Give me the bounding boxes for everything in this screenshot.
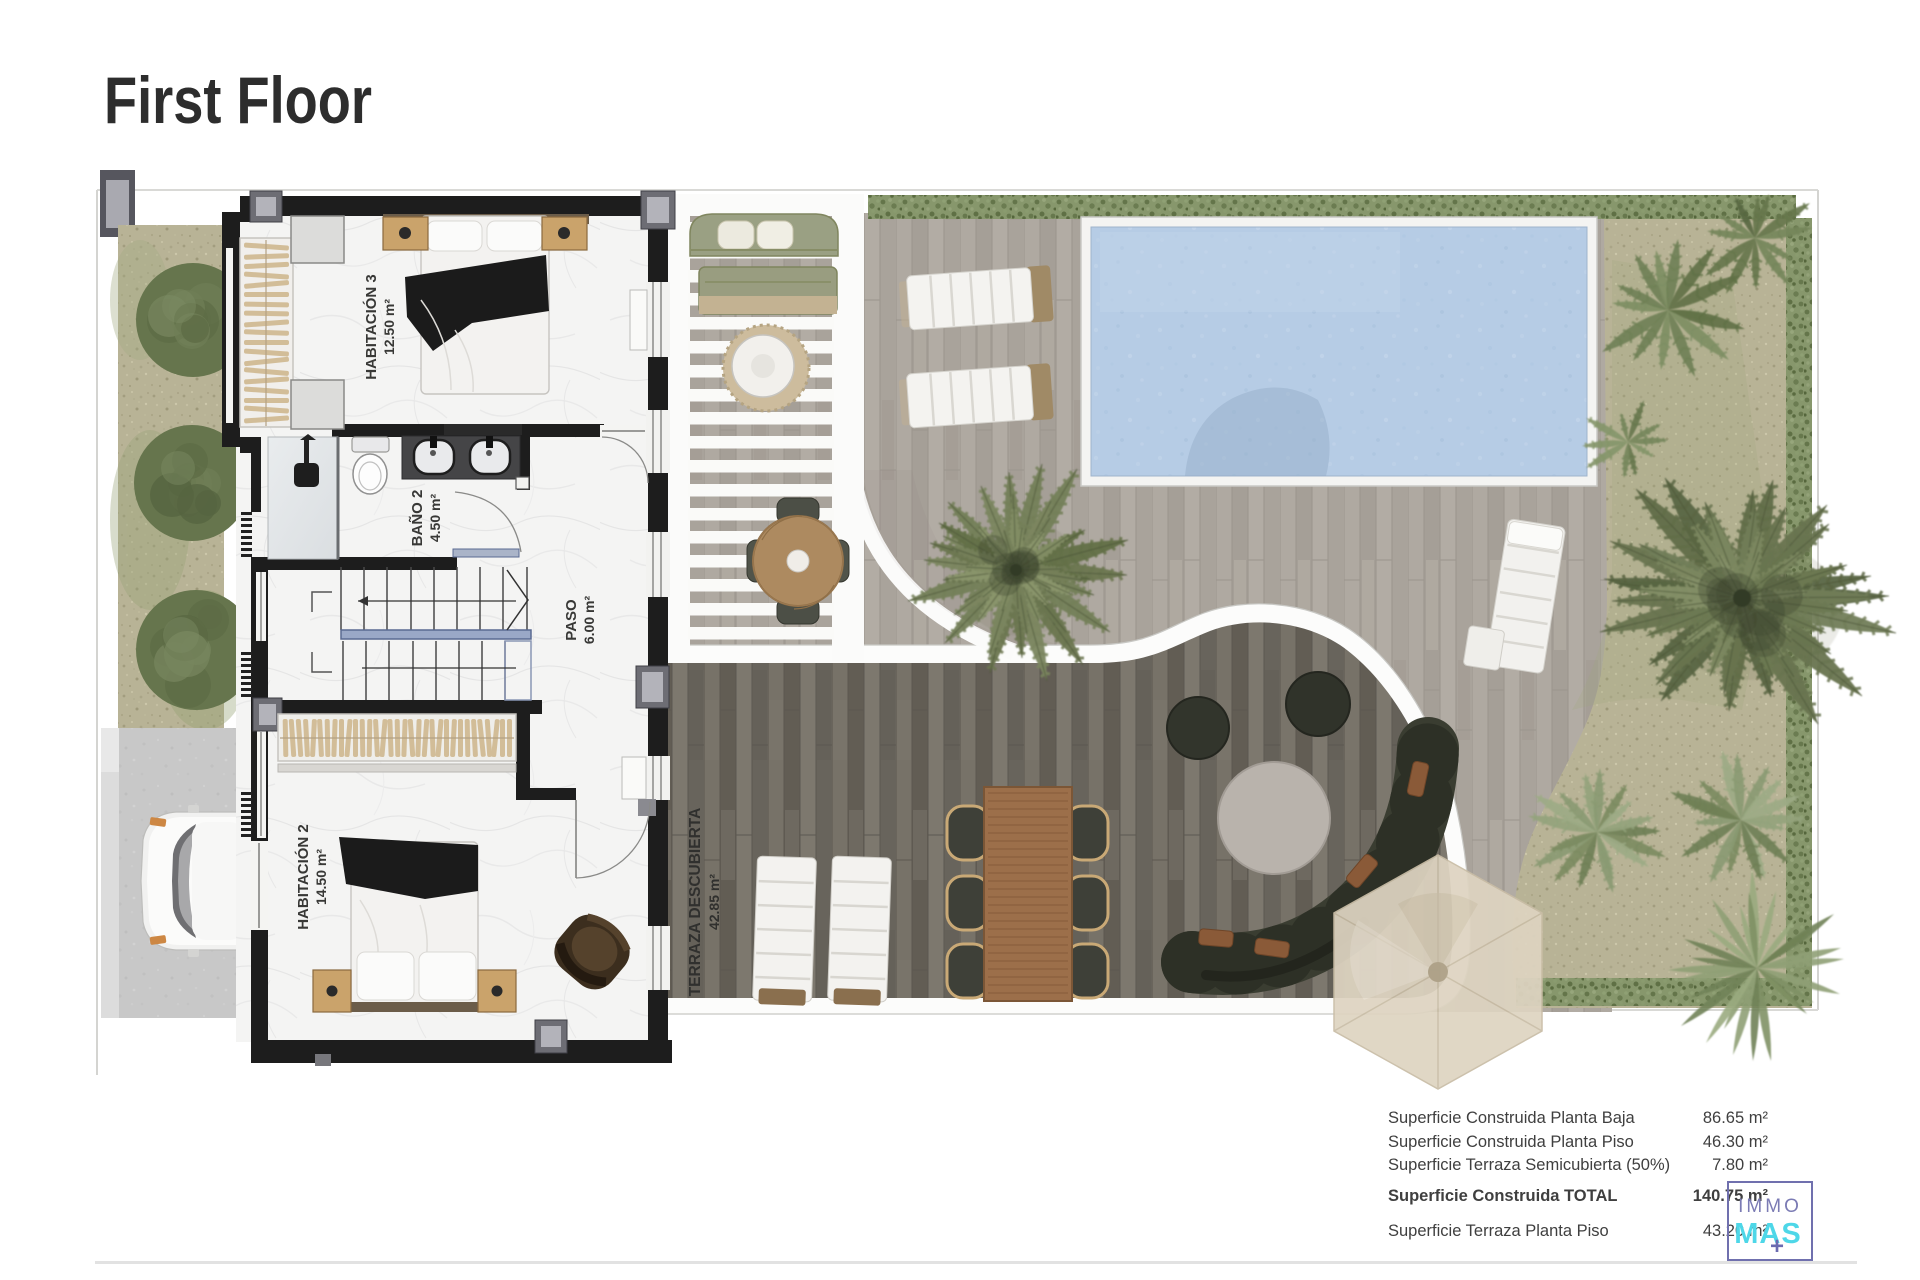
svg-text:IMMO: IMMO	[1738, 1196, 1802, 1217]
svg-text:42.85 m²: 42.85 m²	[706, 874, 722, 930]
svg-text:46.30 m²: 46.30 m²	[1703, 1133, 1769, 1151]
svg-text:Superficie Terraza Semicubiert: Superficie Terraza Semicubierta (50%)	[1388, 1156, 1670, 1174]
svg-text:HABITACIÓN 2: HABITACIÓN 2	[294, 824, 312, 930]
svg-text:HABITACIÓN 3: HABITACIÓN 3	[362, 274, 380, 380]
svg-text:Superficie Construida TOTAL: Superficie Construida TOTAL	[1388, 1187, 1618, 1205]
svg-text:TERRAZA DESCUBIERTA: TERRAZA DESCUBIERTA	[687, 808, 704, 997]
svg-text:86.65 m²: 86.65 m²	[1703, 1109, 1769, 1127]
svg-text:Superficie Construida Planta B: Superficie Construida Planta Baja	[1388, 1109, 1636, 1127]
svg-text:PASO: PASO	[563, 599, 580, 641]
svg-text:MAS: MAS	[1734, 1218, 1801, 1250]
svg-text:6.00 m²: 6.00 m²	[581, 596, 597, 645]
svg-text:4.50 m²: 4.50 m²	[427, 494, 443, 543]
svg-text:+: +	[1770, 1233, 1784, 1260]
svg-text:14.50 m²: 14.50 m²	[313, 849, 329, 905]
svg-text:7.80 m²: 7.80 m²	[1712, 1156, 1768, 1174]
svg-text:Superficie Construida Planta P: Superficie Construida Planta Piso	[1388, 1133, 1634, 1151]
svg-text:Superficie Terraza Planta Piso: Superficie Terraza Planta Piso	[1388, 1222, 1609, 1240]
svg-text:12.50 m²: 12.50 m²	[381, 299, 397, 355]
svg-text:First Floor: First Floor	[104, 63, 372, 137]
svg-text:BAÑO 2: BAÑO 2	[408, 490, 426, 547]
